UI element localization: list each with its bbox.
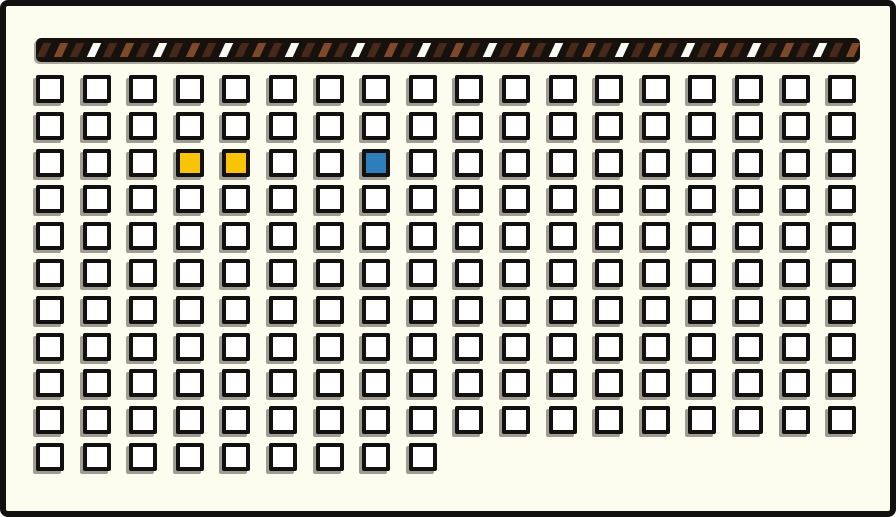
grid-cell[interactable]	[455, 333, 483, 361]
grid-cell[interactable]	[828, 222, 856, 250]
grid-cell[interactable]	[642, 296, 670, 324]
grid-cell[interactable]	[642, 75, 670, 103]
grid-cell[interactable]	[735, 75, 763, 103]
bar-stripe-dark_brown	[730, 43, 745, 57]
bar-stripe-dark_brown	[103, 43, 118, 57]
grid-cell[interactable]	[83, 112, 111, 140]
grid-cell[interactable]	[828, 406, 856, 434]
bar-stripe-medium_brown	[515, 43, 530, 57]
bar-stripe-dark_brown	[136, 43, 151, 57]
bar-stripe-dark_brown	[499, 43, 514, 57]
grid-cell[interactable]	[269, 75, 297, 103]
bar-stripe-white	[482, 43, 497, 57]
grid-cell[interactable]	[735, 333, 763, 361]
bar-stripe-white	[350, 43, 365, 57]
grid-cell[interactable]	[83, 333, 111, 361]
grid-cell[interactable]	[595, 333, 623, 361]
bar-stripe-white	[416, 43, 431, 57]
bar-stripe-medium_brown	[53, 43, 68, 57]
grid-cell[interactable]	[782, 149, 810, 177]
grid-cell[interactable]	[688, 369, 716, 397]
grid-cell[interactable]	[36, 259, 64, 287]
grid-cell[interactable]	[502, 75, 530, 103]
grid-cell[interactable]	[735, 406, 763, 434]
grid-cell[interactable]	[129, 369, 157, 397]
bar-stripe-dark_brown	[202, 43, 217, 57]
bar-stripe-dark_brown	[334, 43, 349, 57]
grid-cell[interactable]	[409, 75, 437, 103]
grid-cell[interactable]	[735, 296, 763, 324]
grid-cell[interactable]	[782, 259, 810, 287]
grid-cell[interactable]	[316, 296, 344, 324]
grid-cell[interactable]	[83, 443, 111, 471]
grid-cell[interactable]	[595, 149, 623, 177]
grid-cell[interactable]	[222, 406, 250, 434]
grid-cell[interactable]	[222, 369, 250, 397]
grid-cell[interactable]	[828, 75, 856, 103]
bar-stripe-medium_brown	[779, 43, 794, 57]
panel-canvas	[0, 0, 896, 517]
grid-cell[interactable]	[549, 406, 577, 434]
grid-cell[interactable]	[595, 222, 623, 250]
grid-cell[interactable]	[269, 259, 297, 287]
grid-cell[interactable]	[735, 369, 763, 397]
grid-cell[interactable]	[316, 369, 344, 397]
grid-cell[interactable]	[688, 112, 716, 140]
grid-cell[interactable]	[502, 112, 530, 140]
grid-cell[interactable]	[828, 296, 856, 324]
bar-stripe-medium_brown	[383, 43, 398, 57]
grid-cell[interactable]	[409, 296, 437, 324]
grid-cell[interactable]	[828, 185, 856, 213]
grid-cell[interactable]	[269, 222, 297, 250]
grid-cell[interactable]	[83, 222, 111, 250]
grid-cell[interactable]	[176, 112, 204, 140]
bar-stripe-white	[680, 43, 695, 57]
grid-cell[interactable]	[362, 75, 390, 103]
bar-stripe-white	[284, 43, 299, 57]
grid-cell[interactable]	[549, 112, 577, 140]
highlighted-cell-yellow[interactable]	[176, 149, 204, 177]
bar-stripe-dark_brown	[598, 43, 613, 57]
grid-cell[interactable]	[455, 259, 483, 287]
grid-cell[interactable]	[502, 259, 530, 287]
grid-cell[interactable]	[362, 333, 390, 361]
grid-cell[interactable]	[316, 222, 344, 250]
bar-stripe-dark_brown	[268, 43, 283, 57]
bar-stripe-medium_brown	[713, 43, 728, 57]
bar-stripe-white	[218, 43, 233, 57]
grid-cell[interactable]	[595, 369, 623, 397]
grid-cell[interactable]	[502, 185, 530, 213]
grid-cell[interactable]	[316, 333, 344, 361]
grid-cell[interactable]	[362, 369, 390, 397]
grid-cell[interactable]	[129, 222, 157, 250]
bar-stripe-dark_brown	[70, 43, 85, 57]
grid-cell[interactable]	[409, 222, 437, 250]
grid-cell[interactable]	[782, 296, 810, 324]
grid-row-7	[36, 296, 856, 324]
grid-row-8	[36, 333, 856, 361]
grid-cell[interactable]	[549, 222, 577, 250]
grid-cell[interactable]	[176, 406, 204, 434]
grid-cell[interactable]	[362, 443, 390, 471]
grid-cell[interactable]	[129, 149, 157, 177]
striped-bar	[36, 38, 860, 62]
grid-cell[interactable]	[735, 112, 763, 140]
bar-stripe-medium_brown	[845, 43, 860, 57]
grid-cell[interactable]	[129, 406, 157, 434]
grid-cell[interactable]	[269, 149, 297, 177]
bar-stripe-dark_brown	[235, 43, 250, 57]
grid-cell[interactable]	[176, 333, 204, 361]
grid-cell[interactable]	[176, 222, 204, 250]
grid-row-1	[36, 75, 856, 103]
grid-cell[interactable]	[549, 185, 577, 213]
grid-cell[interactable]	[688, 75, 716, 103]
grid-cell[interactable]	[409, 185, 437, 213]
grid-cell[interactable]	[222, 296, 250, 324]
grid-cell[interactable]	[502, 333, 530, 361]
grid-cell[interactable]	[176, 185, 204, 213]
grid-cell[interactable]	[316, 75, 344, 103]
grid-cell[interactable]	[316, 406, 344, 434]
grid-cell[interactable]	[502, 296, 530, 324]
grid-cell[interactable]	[129, 296, 157, 324]
grid-cell[interactable]	[36, 443, 64, 471]
bar-stripe-dark_brown	[631, 43, 646, 57]
grid-cell[interactable]	[36, 112, 64, 140]
grid-cell[interactable]	[222, 75, 250, 103]
bar-stripe-medium_brown	[185, 43, 200, 57]
bar-stripe-dark_brown	[796, 43, 811, 57]
grid-cell[interactable]	[129, 185, 157, 213]
grid-cell[interactable]	[642, 369, 670, 397]
grid-cell[interactable]	[176, 75, 204, 103]
grid-cell[interactable]	[36, 75, 64, 103]
grid-cell[interactable]	[688, 149, 716, 177]
grid-cell[interactable]	[502, 149, 530, 177]
grid-cell[interactable]	[36, 296, 64, 324]
grid-cell[interactable]	[176, 369, 204, 397]
bar-stripe-medium_brown	[449, 43, 464, 57]
grid-cell[interactable]	[688, 259, 716, 287]
grid-cell[interactable]	[83, 369, 111, 397]
bar-stripe-medium_brown	[251, 43, 266, 57]
grid-cell[interactable]	[502, 406, 530, 434]
bar-stripe-dark_brown	[37, 43, 52, 57]
grid-cell[interactable]	[409, 369, 437, 397]
bar-stripe-dark_brown	[400, 43, 415, 57]
grid-cell[interactable]	[316, 259, 344, 287]
grid-cell[interactable]	[83, 259, 111, 287]
grid-cell[interactable]	[222, 112, 250, 140]
grid-cell[interactable]	[642, 406, 670, 434]
grid-cell[interactable]	[83, 75, 111, 103]
bar-stripe-white	[152, 43, 167, 57]
grid-cell[interactable]	[36, 185, 64, 213]
grid-cell[interactable]	[828, 369, 856, 397]
grid-cell[interactable]	[595, 296, 623, 324]
bar-stripe-medium_brown	[647, 43, 662, 57]
grid-cell[interactable]	[455, 296, 483, 324]
grid-cell[interactable]	[455, 369, 483, 397]
grid-cell[interactable]	[269, 443, 297, 471]
grid-cell[interactable]	[409, 149, 437, 177]
grid-row-4	[36, 185, 856, 213]
bar-stripe-white	[614, 43, 629, 57]
bar-stripe-white	[812, 43, 827, 57]
grid-cell[interactable]	[269, 185, 297, 213]
grid-cell[interactable]	[176, 443, 204, 471]
bar-stripe-dark_brown	[169, 43, 184, 57]
grid-cell[interactable]	[222, 185, 250, 213]
highlighted-cell-blue[interactable]	[362, 149, 390, 177]
grid-cell[interactable]	[269, 406, 297, 434]
bar-stripe-medium_brown	[317, 43, 332, 57]
bar-stripe-dark_brown	[301, 43, 316, 57]
grid-cell[interactable]	[222, 259, 250, 287]
grid-cell[interactable]	[688, 406, 716, 434]
grid-cell[interactable]	[782, 406, 810, 434]
grid-cell[interactable]	[642, 259, 670, 287]
bar-stripe-dark_brown	[697, 43, 712, 57]
grid-cell[interactable]	[36, 149, 64, 177]
grid-row-2	[36, 112, 856, 140]
grid-cell[interactable]	[129, 75, 157, 103]
grid-cell[interactable]	[129, 333, 157, 361]
bar-stripe-dark_brown	[367, 43, 382, 57]
grid-cell[interactable]	[36, 333, 64, 361]
bar-stripe-dark_brown	[565, 43, 580, 57]
grid-cell[interactable]	[36, 222, 64, 250]
grid-cell[interactable]	[642, 333, 670, 361]
grid-cell[interactable]	[129, 112, 157, 140]
grid-cell[interactable]	[595, 75, 623, 103]
bar-stripe-white	[548, 43, 563, 57]
bar-stripe-dark_brown	[433, 43, 448, 57]
grid-cell[interactable]	[362, 296, 390, 324]
grid-cell[interactable]	[269, 296, 297, 324]
grid-cell[interactable]	[688, 296, 716, 324]
bar-stripe-dark_brown	[664, 43, 679, 57]
grid-cell[interactable]	[735, 185, 763, 213]
slot-grid	[36, 75, 856, 480]
grid-cell[interactable]	[36, 406, 64, 434]
grid-cell[interactable]	[176, 296, 204, 324]
grid-cell[interactable]	[688, 222, 716, 250]
grid-cell[interactable]	[129, 259, 157, 287]
grid-cell[interactable]	[222, 222, 250, 250]
grid-cell[interactable]	[782, 333, 810, 361]
grid-cell[interactable]	[502, 222, 530, 250]
grid-cell[interactable]	[409, 259, 437, 287]
grid-cell[interactable]	[595, 112, 623, 140]
grid-cell[interactable]	[735, 222, 763, 250]
grid-row-10	[36, 406, 856, 434]
grid-cell[interactable]	[595, 406, 623, 434]
grid-cell[interactable]	[316, 185, 344, 213]
grid-cell[interactable]	[455, 185, 483, 213]
grid-cell[interactable]	[362, 259, 390, 287]
grid-cell[interactable]	[83, 296, 111, 324]
grid-cell[interactable]	[269, 369, 297, 397]
grid-cell[interactable]	[642, 112, 670, 140]
grid-cell[interactable]	[549, 333, 577, 361]
grid-row-6	[36, 259, 856, 287]
grid-cell[interactable]	[316, 112, 344, 140]
bar-stripe-medium_brown	[119, 43, 134, 57]
grid-cell[interactable]	[129, 443, 157, 471]
grid-cell[interactable]	[362, 222, 390, 250]
grid-cell[interactable]	[455, 112, 483, 140]
grid-cell[interactable]	[828, 112, 856, 140]
grid-cell[interactable]	[455, 149, 483, 177]
grid-cell[interactable]	[455, 222, 483, 250]
grid-cell[interactable]	[688, 185, 716, 213]
bar-stripe-medium_brown	[581, 43, 596, 57]
grid-cell[interactable]	[269, 112, 297, 140]
grid-cell[interactable]	[83, 406, 111, 434]
grid-row-3	[36, 149, 856, 177]
grid-cell[interactable]	[222, 443, 250, 471]
grid-cell[interactable]	[782, 75, 810, 103]
grid-row-5	[36, 222, 856, 250]
grid-cell[interactable]	[828, 149, 856, 177]
highlighted-cell-yellow[interactable]	[222, 149, 250, 177]
grid-cell[interactable]	[222, 333, 250, 361]
grid-cell[interactable]	[782, 369, 810, 397]
grid-cell[interactable]	[362, 406, 390, 434]
grid-cell[interactable]	[688, 333, 716, 361]
grid-cell[interactable]	[549, 296, 577, 324]
grid-cell[interactable]	[83, 149, 111, 177]
grid-cell[interactable]	[549, 149, 577, 177]
grid-cell[interactable]	[549, 259, 577, 287]
bar-stripe-white	[746, 43, 761, 57]
grid-cell[interactable]	[83, 185, 111, 213]
grid-cell[interactable]	[455, 75, 483, 103]
grid-cell[interactable]	[782, 112, 810, 140]
grid-cell[interactable]	[502, 369, 530, 397]
grid-cell[interactable]	[455, 406, 483, 434]
grid-cell[interactable]	[316, 443, 344, 471]
grid-cell[interactable]	[176, 259, 204, 287]
grid-cell[interactable]	[409, 443, 437, 471]
grid-cell[interactable]	[782, 185, 810, 213]
grid-cell[interactable]	[269, 333, 297, 361]
grid-row-9	[36, 369, 856, 397]
grid-cell[interactable]	[642, 222, 670, 250]
grid-cell[interactable]	[782, 222, 810, 250]
grid-cell[interactable]	[316, 149, 344, 177]
grid-cell[interactable]	[735, 149, 763, 177]
grid-cell[interactable]	[549, 369, 577, 397]
grid-cell[interactable]	[595, 259, 623, 287]
bar-stripe-white	[86, 43, 101, 57]
grid-cell[interactable]	[36, 369, 64, 397]
grid-cell[interactable]	[409, 333, 437, 361]
grid-cell[interactable]	[595, 185, 623, 213]
grid-cell[interactable]	[642, 149, 670, 177]
grid-cell[interactable]	[735, 259, 763, 287]
grid-cell[interactable]	[828, 259, 856, 287]
bar-stripe-dark_brown	[532, 43, 547, 57]
bar-stripe-dark_brown	[466, 43, 481, 57]
grid-cell[interactable]	[409, 406, 437, 434]
grid-cell[interactable]	[362, 112, 390, 140]
bar-stripe-dark_brown	[763, 43, 778, 57]
grid-cell[interactable]	[409, 112, 437, 140]
grid-cell[interactable]	[828, 333, 856, 361]
bar-stripe-dark_brown	[829, 43, 844, 57]
grid-row-11	[36, 443, 856, 471]
grid-cell[interactable]	[549, 75, 577, 103]
grid-cell[interactable]	[642, 185, 670, 213]
grid-cell[interactable]	[362, 185, 390, 213]
